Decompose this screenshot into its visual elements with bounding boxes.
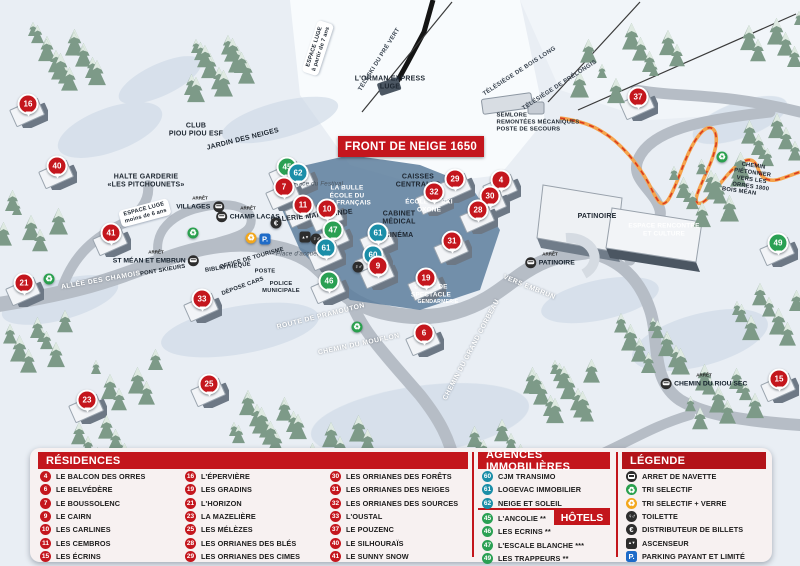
hotel-item: 46LES ECRINS ** — [482, 525, 584, 538]
residence-item: 21L'HORIZON — [185, 497, 300, 510]
residence-item-label: LES ORRIANES DES FORÊTS — [346, 472, 452, 481]
residence-item: 32LES ORRIANES DES SOURCES — [330, 497, 458, 510]
panel-divider — [616, 452, 618, 557]
residence-item-label: L'ÉPERVIÈRE — [201, 472, 250, 481]
legend-item: ARRET DE NAVETTE — [626, 470, 745, 483]
residence-item-label: LES ORRIANES DES CIMES — [201, 552, 300, 561]
residence-item-label: LES CEMBROS — [56, 539, 111, 548]
residence-item-number: 19 — [185, 484, 196, 495]
agence-item-label: NEIGE ET SOLEIL — [498, 499, 562, 508]
residence-item: 29LES ORRIANES DES CIMES — [185, 550, 300, 563]
residence-item: 25LES MÉLÈZES — [185, 523, 300, 536]
hotel-item: 47L'ESCALE BLANCHE *** — [482, 539, 584, 552]
legend-item: ♻TRI SELECTIF — [626, 483, 745, 496]
residence-item-label: LE BOUSSOLENC — [56, 499, 120, 508]
parking-icon: P. — [626, 551, 637, 562]
residence-item-label: L'OUSTAL — [346, 512, 382, 521]
recycle-glass-icon: ♻ — [626, 498, 637, 509]
residence-item: 10LES CARLINES — [40, 523, 145, 536]
legend-item: ▲▼ASCENSEUR — [626, 536, 745, 549]
residence-item-label: LES MÉLÈZES — [201, 525, 253, 534]
residence-item: 11LES CEMBROS — [40, 536, 145, 549]
legend-item-label: TRI SELECTIF — [642, 485, 692, 494]
agence-item-number: 62 — [482, 498, 493, 509]
residence-item: 40LE SILHOURAÏS — [330, 536, 458, 549]
atm-euro-icon: € — [626, 524, 637, 535]
residence-item: 4LE BALCON DES ORRES — [40, 470, 145, 483]
legend-item: ♀♂TOILETTE — [626, 510, 745, 523]
residences-column-2: 16L'ÉPERVIÈRE19LES GRADINS21L'HORIZON23L… — [185, 470, 300, 563]
residence-item: 31LES ORRIANES DES NEIGES — [330, 483, 458, 496]
agence-item-number: 60 — [482, 471, 493, 482]
agence-item-label: LOGEVAC IMMOBILIER — [498, 485, 581, 494]
hotel-item-label: L'ANCOLIE ** — [498, 514, 546, 523]
residence-item: 9LE CAIRN — [40, 510, 145, 523]
legende-list: ARRET DE NAVETTE♻TRI SELECTIF♻TRI SELECT… — [626, 470, 745, 563]
residence-item-label: LE CAIRN — [56, 512, 91, 521]
agence-item: 61LOGEVAC IMMOBILIER — [482, 483, 581, 496]
residence-item: 7LE BOUSSOLENC — [40, 497, 145, 510]
residence-item-number: 31 — [330, 484, 341, 495]
legend-item-label: PARKING PAYANT ET LIMITÉ — [642, 552, 745, 561]
resort-map: L'ORMAN EXPRESS LUGETÉLÉSKI DU PRÉ VERTT… — [0, 0, 800, 566]
residence-item-number: 10 — [40, 524, 51, 535]
bus-glyph — [628, 474, 635, 479]
hotel-item-label: LES ECRINS ** — [498, 527, 551, 536]
toilet-icon: ♀♂ — [626, 511, 637, 522]
hotel-item-label: LES TRAPPEURS ** — [498, 554, 569, 563]
residence-item-number: 41 — [330, 551, 341, 562]
residence-item-number: 37 — [330, 524, 341, 535]
residence-item: 33L'OUSTAL — [330, 510, 458, 523]
agences-list: 60CJM TRANSIMO61LOGEVAC IMMOBILIER62NEIG… — [482, 470, 581, 510]
residence-item-label: LES ORRIANES DES NEIGES — [346, 485, 450, 494]
recycle-icon: ♻ — [626, 484, 637, 495]
legend-item: P.PARKING PAYANT ET LIMITÉ — [626, 550, 745, 563]
residence-item-label: LA MAZELIÈRE — [201, 512, 256, 521]
residence-item-label: LE SILHOURAÏS — [346, 539, 404, 548]
residence-item-number: 30 — [330, 471, 341, 482]
legend-item: €DISTRIBUTEUR DE BILLETS — [626, 523, 745, 536]
residence-item-number: 6 — [40, 484, 51, 495]
residences-column-1: 4LE BALCON DES ORRES6LE BELVÉDÈRE7LE BOU… — [40, 470, 145, 563]
legend-item-label: TOILETTE — [642, 512, 678, 521]
elevator-icon: ▲▼ — [626, 538, 637, 549]
residence-item-number: 33 — [330, 511, 341, 522]
hotel-item-label: L'ESCALE BLANCHE *** — [498, 541, 584, 550]
residence-item: 41LE SUNNY SNOW — [330, 550, 458, 563]
residence-item-label: LE POUZENC — [346, 525, 394, 534]
residences-header: RÉSIDENCES — [38, 452, 468, 469]
residence-item-number: 29 — [185, 551, 196, 562]
residence-item: 16L'ÉPERVIÈRE — [185, 470, 300, 483]
bus-icon — [626, 471, 637, 482]
panel-divider — [472, 452, 474, 557]
residence-item-label: LE BALCON DES ORRES — [56, 472, 145, 481]
residence-item-label: LES ÉCRINS — [56, 552, 101, 561]
hotel-item: 45L'ANCOLIE ** — [482, 512, 584, 525]
residence-item-number: 15 — [40, 551, 51, 562]
hotel-item-number: 46 — [482, 526, 493, 537]
residences-column-3: 30LES ORRIANES DES FORÊTS31LES ORRIANES … — [330, 470, 458, 563]
residence-item: 37LE POUZENC — [330, 523, 458, 536]
residence-item-number: 21 — [185, 498, 196, 509]
residence-item-label: LE BELVÉDÈRE — [56, 485, 113, 494]
residence-item: 6LE BELVÉDÈRE — [40, 483, 145, 496]
legend-item-label: DISTRIBUTEUR DE BILLETS — [642, 525, 743, 534]
legend-item: ♻TRI SELECTIF + VERRE — [626, 497, 745, 510]
residence-item: 15LES ÉCRINS — [40, 550, 145, 563]
residence-item-number: 28 — [185, 538, 196, 549]
residence-item-label: LES ORRIANES DES SOURCES — [346, 499, 458, 508]
residence-item: 19LES GRADINS — [185, 483, 300, 496]
residence-item-number: 4 — [40, 471, 51, 482]
residence-item-number: 16 — [185, 471, 196, 482]
agences-header: AGENCES IMMOBILIÈRES — [478, 452, 610, 469]
residence-item: 30LES ORRIANES DES FORÊTS — [330, 470, 458, 483]
hotel-item-number: 49 — [482, 553, 493, 564]
legende-header: LÉGENDE — [622, 452, 766, 469]
residence-item-number: 40 — [330, 538, 341, 549]
residence-item-number: 32 — [330, 498, 341, 509]
residence-item-label: LE SUNNY SNOW — [346, 552, 409, 561]
agence-item-number: 61 — [482, 484, 493, 495]
residence-item-number: 7 — [40, 498, 51, 509]
front-de-neige-banner: FRONT DE NEIGE 1650 — [338, 136, 484, 157]
legend-item-label: ARRET DE NAVETTE — [642, 472, 716, 481]
agence-item-label: CJM TRANSIMO — [498, 472, 556, 481]
legend-panel: RÉSIDENCES AGENCES IMMOBILIÈRES LÉGENDE … — [30, 448, 772, 562]
legend-item-label: TRI SELECTIF + VERRE — [642, 499, 727, 508]
residence-item-number: 23 — [185, 511, 196, 522]
residence-item-label: L'HORIZON — [201, 499, 242, 508]
residence-item-label: LES GRADINS — [201, 485, 252, 494]
agence-item: 60CJM TRANSIMO — [482, 470, 581, 483]
residence-item-number: 25 — [185, 524, 196, 535]
hotels-list: 45L'ANCOLIE **46LES ECRINS **47L'ESCALE … — [482, 512, 584, 565]
residence-item: 28LES ORRIANES DES BLÉS — [185, 536, 300, 549]
residence-item-number: 11 — [40, 538, 51, 549]
agence-item: 62NEIGE ET SOLEIL — [482, 497, 581, 510]
hotel-item: 49LES TRAPPEURS ** — [482, 552, 584, 565]
residence-item-label: LES CARLINES — [56, 525, 111, 534]
hotel-item-number: 47 — [482, 540, 493, 551]
residence-item-number: 9 — [40, 511, 51, 522]
legend-item-label: ASCENSEUR — [642, 539, 689, 548]
residence-item-label: LES ORRIANES DES BLÉS — [201, 539, 296, 548]
hotel-item-number: 45 — [482, 513, 493, 524]
residence-item: 23LA MAZELIÈRE — [185, 510, 300, 523]
